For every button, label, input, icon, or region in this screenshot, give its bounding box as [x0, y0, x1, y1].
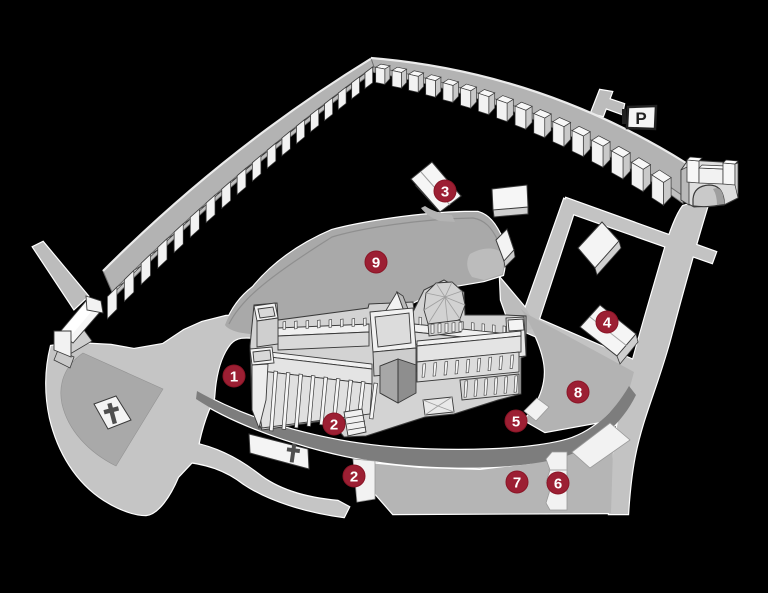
svg-text:1: 1 [230, 368, 238, 385]
svg-text:P: P [635, 109, 646, 128]
svg-text:8: 8 [574, 384, 582, 401]
svg-text:5: 5 [512, 413, 520, 430]
svg-text:6: 6 [554, 475, 562, 492]
svg-text:2: 2 [330, 416, 338, 433]
svg-text:3: 3 [441, 183, 449, 200]
svg-text:9: 9 [372, 254, 380, 271]
svg-text:7: 7 [513, 474, 521, 491]
svg-text:2: 2 [350, 468, 358, 485]
svg-text:4: 4 [603, 314, 612, 331]
